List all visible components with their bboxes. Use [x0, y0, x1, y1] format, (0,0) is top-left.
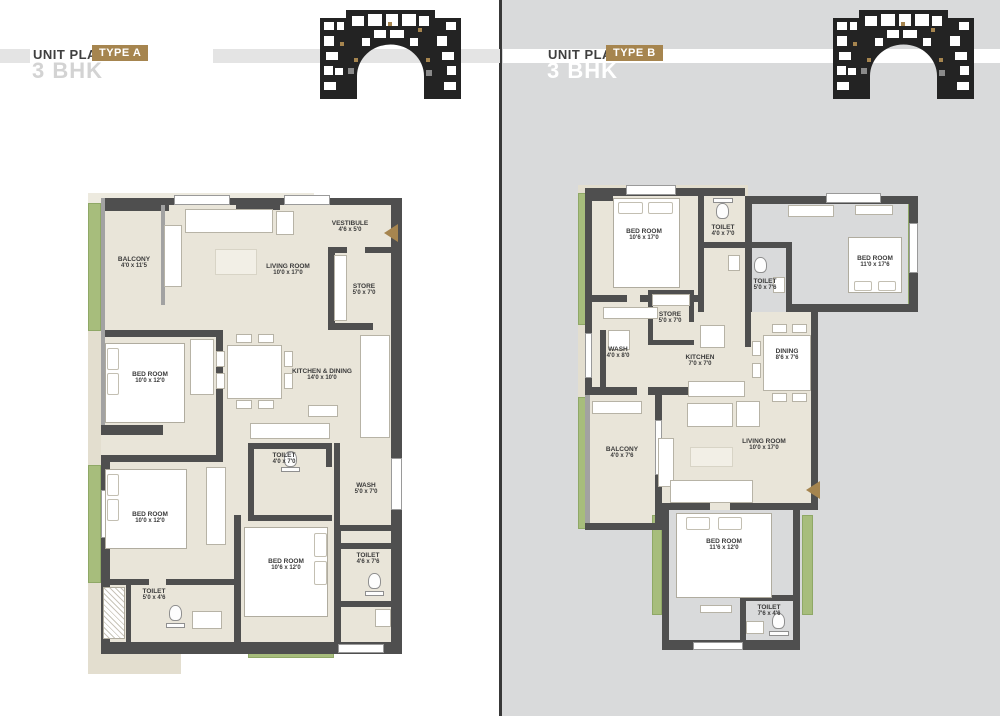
window — [174, 195, 230, 205]
wall — [248, 515, 332, 521]
bhk-subtitle-b: 3 BHK — [547, 58, 618, 84]
kitchen-counter-icon — [360, 335, 390, 438]
floor — [585, 395, 655, 530]
pillow-icon — [314, 533, 327, 557]
room-label: BED ROOM10'0 x 12'0 — [132, 511, 168, 525]
duct-shaft — [103, 587, 125, 639]
wall — [248, 443, 332, 449]
toilet-icon — [754, 257, 767, 273]
pillow-icon — [618, 202, 643, 214]
wall — [662, 503, 669, 650]
pillow-icon — [107, 499, 119, 521]
floor-plan-type-b: BED ROOM10'6 x 17'0 TOILET4'0 x 7'0 TOIL… — [578, 185, 918, 650]
header-stripe — [0, 49, 30, 63]
pillow-icon — [107, 474, 119, 496]
room-label: KITCHEN7'0 x 7'0 — [686, 354, 715, 368]
floor-plan-type-a: BALCONY4'0 x 11'5 LIVING ROOM10'0 x 17'0… — [88, 193, 408, 658]
shelf-icon — [592, 401, 642, 414]
chair-icon — [216, 351, 225, 367]
pillow-icon — [718, 517, 742, 530]
room-label: TOILET4'0 x 7'0 — [273, 452, 296, 466]
wall — [101, 579, 149, 585]
room-label: TOILET4'0 x 7'0 — [712, 224, 735, 238]
toilet-icon — [713, 198, 733, 203]
pillow-icon — [854, 281, 872, 291]
wall — [216, 330, 223, 462]
washbasin-icon — [375, 609, 391, 627]
panel-divider — [499, 0, 502, 716]
wall — [600, 330, 606, 392]
room-label: WASH4'0 x 8'0 — [607, 346, 630, 360]
shelf-icon — [788, 205, 834, 217]
wall — [326, 443, 332, 467]
shelf-icon — [334, 255, 347, 321]
wall — [166, 579, 236, 585]
chair-icon — [752, 363, 761, 378]
wardrobe-icon — [855, 205, 893, 215]
sofa-icon — [670, 480, 753, 503]
wall — [745, 242, 791, 248]
room-label: DINING8'6 x 7'6 — [776, 348, 799, 362]
wall — [745, 312, 751, 347]
room-label: LIVING ROOM10'0 x 17'0 — [742, 438, 786, 452]
room-label: STORE5'0 x 7'0 — [353, 283, 376, 297]
wall — [730, 503, 818, 510]
chair-icon — [772, 324, 787, 333]
room-label: BED ROOM11'0 x 17'6 — [857, 255, 893, 269]
entry-arrow-icon — [806, 481, 820, 499]
wall — [334, 525, 394, 531]
window — [909, 223, 918, 273]
room-label: BED ROOM10'6 x 12'0 — [268, 558, 304, 572]
pillow-icon — [686, 517, 710, 530]
room-label: TOILET7'6 x 4'6 — [758, 604, 781, 618]
wall — [335, 247, 347, 253]
wall — [585, 523, 662, 530]
pillow-icon — [648, 202, 673, 214]
counter-icon — [250, 423, 330, 439]
shelf-icon — [652, 294, 690, 306]
landscape-strip — [652, 515, 662, 615]
room-label: BED ROOM11'6 x 12'0 — [706, 538, 742, 552]
landscape-strip — [88, 465, 101, 583]
window — [585, 333, 592, 378]
wall — [248, 443, 254, 521]
brochure-page: UNIT PLAN TYPE A 3 BHK UNIT PLAN TYPE B … — [0, 0, 1000, 716]
window — [826, 193, 881, 203]
room-label: BED ROOM10'6 x 17'0 — [626, 228, 662, 242]
entry-arrow-icon — [384, 224, 398, 242]
room-label: VESTIBULE4'6 x 5'0 — [332, 220, 368, 234]
toilet-icon — [281, 467, 300, 472]
rug — [215, 249, 257, 275]
window — [693, 642, 743, 650]
toilet-icon — [166, 623, 185, 628]
landscape-strip — [802, 515, 813, 615]
wall — [101, 455, 223, 462]
room-label: BALCONY4'0 x 11'5 — [118, 256, 150, 270]
wall — [101, 198, 169, 211]
sofa-icon — [687, 403, 733, 427]
wall — [341, 543, 395, 549]
washbasin-icon — [192, 611, 222, 629]
kitchen-counter-icon — [700, 325, 725, 348]
dining-table-icon — [763, 335, 811, 391]
chair-icon — [752, 341, 761, 356]
wall — [648, 340, 694, 345]
chair-icon — [258, 334, 274, 343]
washbasin-icon — [746, 621, 764, 634]
wall — [585, 387, 637, 395]
chair-icon — [772, 393, 787, 402]
chair-icon — [236, 334, 252, 343]
toilet-icon — [368, 573, 381, 589]
landscape-strip — [88, 203, 101, 331]
chair-icon — [216, 373, 225, 389]
key-plan — [318, 6, 463, 101]
toilet-icon — [769, 631, 789, 636]
wall — [391, 198, 402, 645]
room-label: TOILET4'6 x 7'6 — [357, 552, 380, 566]
toilet-icon — [365, 591, 384, 596]
window — [284, 195, 330, 205]
room-label: LIVING ROOM10'0 x 17'0 — [266, 263, 310, 277]
wall — [698, 188, 704, 312]
room-label: BALCONY4'0 x 7'6 — [606, 446, 638, 460]
wall — [745, 196, 752, 312]
wall — [704, 242, 745, 248]
window — [391, 458, 402, 510]
room-label: WASH5'0 x 7'0 — [355, 482, 378, 496]
room-label: KITCHEN & DINING14'0 x 10'0 — [292, 368, 352, 382]
chair-icon — [258, 400, 274, 409]
window — [626, 185, 676, 195]
kitchen-counter-icon — [308, 405, 338, 417]
wall — [101, 425, 163, 435]
bench-icon — [700, 605, 732, 613]
chair-icon — [236, 400, 252, 409]
wardrobe-icon — [206, 467, 226, 545]
room-label: BED ROOM10'0 x 12'0 — [132, 371, 168, 385]
room-label: TOILET5'0 x 4'6 — [143, 588, 166, 602]
wall — [101, 330, 223, 337]
wall — [786, 242, 792, 312]
chair-icon — [792, 393, 807, 402]
wall — [662, 503, 710, 510]
shelf-icon — [603, 307, 658, 319]
bhk-subtitle-a: 3 BHK — [32, 58, 103, 84]
armchair-icon — [736, 401, 760, 427]
wall — [341, 601, 395, 607]
pillow-icon — [878, 281, 896, 291]
dining-table-icon — [227, 345, 282, 399]
wall — [334, 525, 341, 645]
wall — [365, 247, 391, 253]
wall — [740, 595, 746, 643]
armchair-icon — [276, 211, 294, 235]
kitchen-counter-icon — [688, 381, 745, 397]
toilet-icon — [716, 203, 729, 219]
room-label: STORE5'0 x 7'0 — [659, 311, 682, 325]
pillow-icon — [314, 561, 327, 585]
wall — [126, 585, 131, 642]
key-plan — [831, 6, 976, 101]
wardrobe-icon — [190, 339, 214, 395]
rug — [690, 447, 733, 467]
wall — [585, 295, 627, 302]
wall — [334, 443, 340, 531]
sofa-icon — [185, 209, 273, 233]
window — [338, 644, 384, 653]
pillow-icon — [107, 348, 119, 370]
wall — [328, 323, 373, 330]
room-label: TOILET5'0 x 7'6 — [754, 278, 777, 292]
washbasin-icon — [728, 255, 740, 271]
chair-icon — [792, 324, 807, 333]
toilet-icon — [169, 605, 182, 621]
pillow-icon — [107, 373, 119, 395]
tv-unit-icon — [164, 225, 182, 287]
wall — [793, 510, 800, 650]
chair-icon — [284, 351, 293, 367]
wall — [786, 304, 918, 312]
balcony-parapet — [585, 395, 590, 530]
